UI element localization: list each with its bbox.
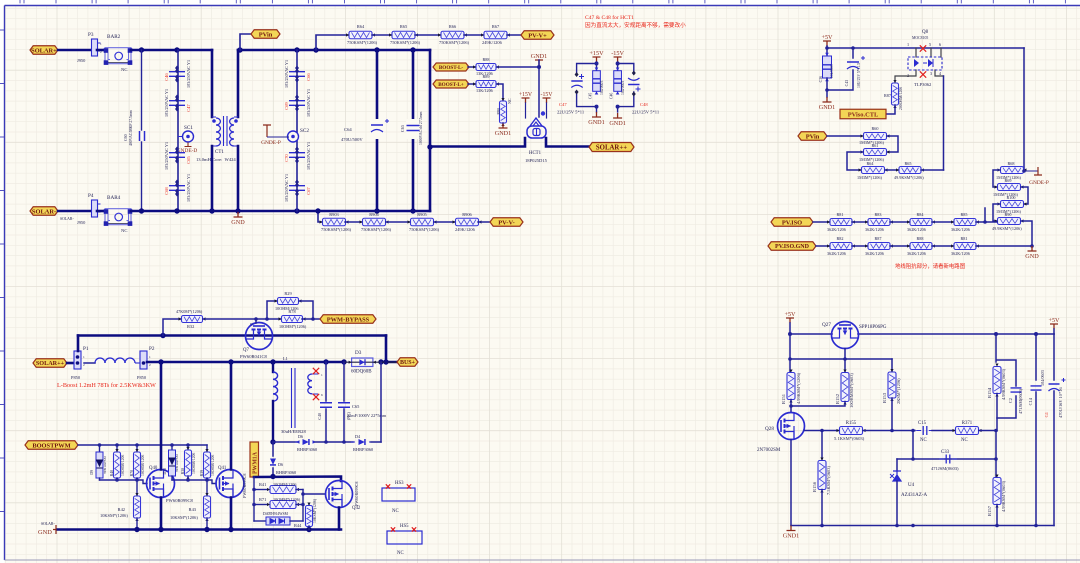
svg-text:10OHMSM*(0603): 10OHMSM*(0603) — [849, 373, 854, 408]
svg-text:G1: G1 — [1044, 412, 1049, 417]
svg-text:P3: P3 — [88, 32, 94, 38]
svg-text:HS3: HS3 — [395, 481, 404, 486]
svg-text:C65: C65 — [186, 156, 191, 164]
svg-text:TH914WSM: TH914WSM — [175, 454, 179, 472]
svg-text:3: 3 — [930, 71, 932, 76]
svg-text:R151: R151 — [781, 393, 786, 404]
svg-text:362K/1206: 362K/1206 — [907, 251, 926, 256]
svg-text:PV-V+: PV-V+ — [528, 32, 547, 39]
svg-text:10OHM/1206: 10OHM/1206 — [192, 453, 196, 474]
svg-text:Q8: Q8 — [922, 30, 929, 35]
svg-text:103/250VAC Y1: 103/250VAC Y1 — [186, 174, 191, 202]
svg-text:750KSM*(1206): 750KSM*(1206) — [439, 40, 470, 45]
svg-text:R69: R69 — [1005, 178, 1012, 183]
svg-text:NC: NC — [920, 438, 927, 443]
svg-text:C65: C65 — [352, 404, 360, 409]
svg-text:60DQ60B: 60DQ60B — [351, 370, 372, 375]
svg-text:D6: D6 — [278, 462, 283, 467]
svg-text:49.9KSM*(1206): 49.9KSM*(1206) — [894, 175, 924, 180]
svg-text:SOLAR-: SOLAR- — [32, 208, 56, 215]
svg-text:C45: C45 — [589, 93, 593, 99]
svg-text:49.9KSM*(1206): 49.9KSM*(1206) — [992, 226, 1022, 231]
svg-text:R371: R371 — [962, 421, 973, 426]
svg-text:R41: R41 — [259, 482, 266, 487]
svg-text:2KSM*(1206): 2KSM*(1206) — [896, 378, 901, 404]
svg-text:C47 & C48 for HCT1: C47 & C48 for HCT1 — [585, 14, 634, 21]
svg-text:R68: R68 — [1008, 161, 1015, 166]
svg-text:400VAC/MKP 27.5mm: 400VAC/MKP 27.5mm — [129, 110, 133, 146]
svg-text:362K/1206: 362K/1206 — [951, 251, 970, 256]
svg-text:NC: NC — [121, 67, 127, 72]
svg-text:2: 2 — [149, 363, 151, 367]
svg-text:PVin: PVin — [806, 133, 820, 140]
svg-text:1: 1 — [321, 373, 323, 377]
svg-text:1: 1 — [83, 355, 85, 359]
svg-text:P2: P2 — [149, 346, 155, 352]
svg-text:471JSM(0603): 471JSM(0603) — [931, 466, 959, 471]
svg-text:P1: P1 — [83, 346, 89, 352]
svg-text:C46: C46 — [610, 93, 614, 99]
svg-text:103/250VAC Y1: 103/250VAC Y1 — [306, 142, 311, 170]
svg-text:+15V: +15V — [589, 50, 604, 57]
svg-text:+5V: +5V — [821, 34, 833, 41]
svg-text:C36: C36 — [819, 76, 823, 82]
svg-text:PViso.CTL: PViso.CTL — [848, 111, 878, 118]
svg-text:R65: R65 — [905, 161, 912, 166]
svg-text:5: 5 — [929, 42, 931, 47]
svg-text:362K/1206: 362K/1206 — [865, 251, 884, 256]
svg-text:6: 6 — [939, 42, 941, 47]
svg-text:10OHM/1206: 10OHM/1206 — [211, 455, 215, 476]
svg-text:因为直流太大，安规距离不够，需要改小: 因为直流太大，安规距离不够，需要改小 — [585, 21, 686, 29]
svg-text:103/250VAC Y1: 103/250VAC Y1 — [306, 89, 311, 117]
svg-text:1000VAC/dd 27.5mm: 1000VAC/dd 27.5mm — [419, 111, 423, 145]
svg-text:BOOST-L+: BOOST-L+ — [438, 82, 464, 88]
svg-text:4.99KSM*(0603): 4.99KSM*(0603) — [1001, 368, 1006, 400]
svg-text:103/250VAC Y1: 103/250VAC Y1 — [164, 89, 169, 117]
svg-text:249K/1206: 249K/1206 — [455, 227, 476, 232]
svg-text:P850: P850 — [71, 375, 81, 380]
svg-text:362K/1206: 362K/1206 — [951, 227, 970, 232]
svg-text:C67: C67 — [306, 187, 311, 195]
svg-text:R82: R82 — [837, 236, 844, 241]
svg-text:10OHM/1206: 10OHM/1206 — [141, 455, 145, 476]
svg-text:103/250VAC Y1: 103/250VAC Y1 — [186, 60, 191, 88]
svg-text:103/250VAC Y1: 103/250VAC Y1 — [164, 142, 169, 170]
svg-text:-15V: -15V — [611, 50, 624, 57]
svg-text:R70: R70 — [130, 470, 134, 476]
svg-text:P4: P4 — [88, 193, 94, 199]
svg-text:10U/25V 5*11.5: 10U/25V 5*11.5 — [857, 63, 861, 88]
svg-text:SOLAR++: SOLAR++ — [36, 360, 65, 367]
svg-text:PWM1A: PWM1A — [253, 451, 259, 474]
svg-text:470U/16V 10*16: 470U/16V 10*16 — [1058, 387, 1063, 418]
svg-text:SOLAR+: SOLAR+ — [31, 47, 57, 54]
svg-text:TH914WSM: TH914WSM — [269, 512, 289, 516]
svg-text:R155: R155 — [846, 421, 857, 426]
svg-text:R83: R83 — [875, 212, 882, 217]
svg-text:PW60R099C8: PW60R099C8 — [166, 498, 194, 503]
svg-text:HCT1: HCT1 — [529, 151, 542, 156]
svg-text:R38: R38 — [181, 468, 185, 474]
svg-text:BOOST-L-: BOOST-L- — [439, 65, 464, 71]
svg-text:471JSM(0603): 471JSM(0603) — [1018, 388, 1023, 414]
svg-text:R81: R81 — [837, 212, 844, 217]
svg-text:NC: NC — [121, 228, 127, 233]
svg-text:249K/1206: 249K/1206 — [482, 40, 503, 45]
svg-text:10KSM*(1206): 10KSM*(1206) — [313, 498, 317, 523]
svg-text:GND1: GND1 — [588, 119, 605, 126]
svg-text:104/0603: 104/0603 — [621, 81, 625, 95]
svg-text:R903: R903 — [329, 212, 339, 217]
svg-text:SC2: SC2 — [300, 128, 309, 134]
svg-text:SOLAR++: SOLAR++ — [596, 144, 627, 151]
svg-text:BOOSTPWM: BOOSTPWM — [32, 442, 70, 449]
svg-text:R67: R67 — [492, 24, 500, 29]
svg-text:750KSM*(1206): 750KSM*(1206) — [361, 227, 392, 232]
svg-text:R29: R29 — [284, 291, 292, 296]
svg-text:C60: C60 — [123, 134, 128, 141]
svg-text:18P025D15: 18P025D15 — [525, 158, 548, 163]
svg-text:1: 1 — [100, 42, 102, 46]
svg-text:GNDE-P: GNDE-P — [261, 140, 281, 146]
svg-text:R39: R39 — [200, 470, 204, 476]
svg-text:SOLAR-: SOLAR- — [60, 217, 74, 221]
svg-text:10OHM/1206: 10OHM/1206 — [121, 455, 125, 476]
svg-text:104/0603: 104/0603 — [830, 64, 834, 78]
svg-text:1M3M*(1206): 1M3M*(1206) — [857, 175, 882, 180]
svg-text:R61: R61 — [872, 143, 879, 148]
svg-text:47K0M*(1206): 47K0M*(1206) — [176, 309, 203, 314]
svg-text:NC: NC — [961, 438, 968, 443]
svg-text:C48: C48 — [640, 102, 648, 107]
svg-text:MOC8105: MOC8105 — [912, 36, 928, 40]
svg-text:Q27: Q27 — [822, 322, 831, 328]
svg-text:+5V: +5V — [1048, 317, 1060, 324]
svg-text:L1: L1 — [283, 356, 288, 361]
svg-text:R84: R84 — [917, 212, 925, 217]
svg-text:+15V: +15V — [519, 92, 533, 98]
svg-text:R43: R43 — [189, 507, 197, 512]
svg-text:200OHM/1206: 200OHM/1206 — [899, 87, 903, 110]
svg-text:RHRP3060: RHRP3060 — [353, 447, 374, 452]
svg-text:750KSM*(1206): 750KSM*(1206) — [390, 40, 421, 45]
svg-text:362K/1206: 362K/1206 — [827, 251, 846, 256]
svg-text:R32: R32 — [187, 324, 194, 329]
svg-text:C46: C46 — [164, 73, 169, 81]
svg-text:PW60R099C8: PW60R099C8 — [242, 474, 247, 498]
svg-text:D3: D3 — [355, 350, 362, 356]
svg-text:CT1: CT1 — [215, 150, 224, 155]
svg-text:10KSM*(1206): 10KSM*(1206) — [100, 513, 128, 518]
svg-text:C68: C68 — [164, 187, 169, 195]
svg-text:R40: R40 — [110, 470, 114, 476]
svg-text:R66: R66 — [449, 24, 457, 29]
svg-text:C47: C47 — [559, 102, 567, 107]
svg-text:7.5KSM*(0603): 7.5KSM*(0603) — [826, 466, 831, 495]
svg-text:22U/25V 5*11: 22U/25V 5*11 — [557, 110, 585, 115]
svg-text:R80: R80 — [496, 108, 501, 115]
svg-text:R89: R89 — [483, 74, 490, 79]
svg-text:750KSM*(1206): 750KSM*(1206) — [409, 227, 440, 232]
svg-text:5.1KSM*(0603): 5.1KSM*(0603) — [834, 436, 865, 441]
svg-text:C43: C43 — [845, 80, 849, 86]
svg-text:GND: GND — [1025, 253, 1039, 260]
svg-text:R152: R152 — [835, 393, 840, 404]
svg-text:PWM-BYPASS: PWM-BYPASS — [327, 316, 370, 323]
svg-text:D4: D4 — [355, 434, 361, 439]
svg-text:C2: C2 — [1008, 398, 1013, 403]
svg-text:10OHM*(1206): 10OHM*(1206) — [273, 497, 301, 502]
svg-text:GND: GND — [231, 219, 245, 226]
svg-text:R88: R88 — [483, 57, 490, 62]
svg-text:PVin: PVin — [259, 31, 273, 38]
svg-text:22U/25V 5*11: 22U/25V 5*11 — [632, 110, 660, 115]
svg-text:C69: C69 — [284, 102, 289, 110]
svg-text:6: 6 — [321, 393, 323, 397]
svg-text:R154: R154 — [987, 387, 992, 398]
svg-text:R156: R156 — [812, 481, 817, 492]
svg-text:R88: R88 — [917, 236, 924, 241]
svg-text:1: 1 — [149, 355, 151, 359]
svg-text:R904: R904 — [369, 212, 379, 217]
svg-text:R905: R905 — [417, 212, 427, 217]
svg-text:13.0mH Core: W424: 13.0mH Core: W424 — [196, 157, 236, 162]
svg-text:C47: C47 — [186, 104, 191, 112]
svg-text:GND: GND — [38, 529, 52, 536]
svg-text:104/0603: 104/0603 — [600, 81, 604, 95]
svg-text:750KSM*(1206): 750KSM*(1206) — [321, 227, 352, 232]
svg-text:C15: C15 — [918, 421, 927, 426]
svg-text:GNDE-P: GNDE-P — [1029, 180, 1049, 186]
svg-text:362K/1206: 362K/1206 — [865, 227, 884, 232]
svg-text:PW60R099C8: PW60R099C8 — [354, 482, 359, 506]
svg-text:BAR2: BAR2 — [107, 34, 121, 40]
svg-text:J950: J950 — [77, 58, 86, 63]
svg-text:R71: R71 — [259, 497, 266, 502]
svg-text:PV.ISO.GND: PV.ISO.GND — [775, 244, 810, 250]
svg-text:C70: C70 — [284, 154, 289, 162]
svg-text:C40: C40 — [317, 413, 322, 420]
svg-text:104/0603: 104/0603 — [1040, 370, 1045, 386]
svg-text:10OHM*(1206): 10OHM*(1206) — [279, 324, 307, 329]
svg-text:4.99KSM*(1206): 4.99KSM*(1206) — [796, 372, 801, 404]
svg-text:GND1: GND1 — [531, 53, 548, 60]
svg-text:GND1: GND1 — [495, 130, 512, 137]
svg-text:R90: R90 — [1005, 212, 1012, 217]
svg-text:10KSM*(1206): 10KSM*(1206) — [170, 515, 198, 520]
svg-text:U4: U4 — [908, 483, 915, 488]
svg-text:2N7002SM: 2N7002SM — [757, 448, 781, 453]
svg-text:103/250VAC Y1: 103/250VAC Y1 — [284, 60, 289, 88]
svg-text:GND1: GND1 — [609, 120, 626, 127]
svg-text:C33: C33 — [941, 450, 950, 455]
svg-text:RHRP3060: RHRP3060 — [276, 470, 297, 475]
svg-text:NC: NC — [392, 509, 399, 514]
svg-text:TLP3062: TLP3062 — [914, 82, 932, 87]
svg-text:R44: R44 — [294, 523, 302, 528]
svg-text:C65: C65 — [400, 125, 405, 132]
svg-text:GND1: GND1 — [783, 533, 800, 540]
svg-text:470U/500V: 470U/500V — [341, 137, 363, 142]
svg-text:PW60R041C8: PW60R041C8 — [240, 354, 268, 359]
svg-text:D9: D9 — [90, 470, 94, 475]
svg-text:TH914WSM: TH914WSM — [103, 456, 107, 474]
svg-text:362K/1206: 362K/1206 — [827, 227, 846, 232]
svg-text:SC1: SC1 — [184, 125, 193, 131]
svg-text:R85: R85 — [961, 212, 968, 217]
svg-text:R87: R87 — [884, 93, 891, 98]
svg-text:Q41: Q41 — [218, 466, 227, 471]
svg-text:R906: R906 — [462, 212, 472, 217]
svg-text:RHRP3060: RHRP3060 — [297, 447, 318, 452]
svg-text:R87: R87 — [875, 236, 882, 241]
svg-text:NC: NC — [507, 98, 512, 104]
svg-text:PV-V-: PV-V- — [498, 219, 514, 226]
svg-text:PV.ISO: PV.ISO — [782, 219, 802, 226]
svg-text:R42: R42 — [118, 507, 125, 512]
svg-text:4.99KSM*(0603): 4.99KSM*(0603) — [1001, 480, 1006, 512]
svg-text:R64: R64 — [867, 161, 875, 166]
svg-text:C64: C64 — [344, 127, 352, 132]
svg-text:R81: R81 — [961, 236, 968, 241]
svg-text:BUS+: BUS+ — [400, 360, 416, 366]
svg-text:SPP18P06PG: SPP18P06PG — [859, 325, 887, 330]
svg-text:750KSM*(1206): 750KSM*(1206) — [347, 40, 378, 45]
svg-text:Q40: Q40 — [149, 466, 158, 471]
svg-text:地线阻抗部分，请看新电路图: 地线阻抗部分，请看新电路图 — [895, 262, 965, 270]
svg-text:Q7: Q7 — [243, 348, 249, 353]
svg-text:R78: R78 — [288, 309, 296, 314]
svg-text:NC: NC — [397, 551, 404, 556]
svg-text:J950: J950 — [77, 220, 86, 225]
svg-text:R100: R100 — [1006, 195, 1015, 200]
svg-text:C14: C14 — [1028, 397, 1033, 405]
svg-text:362K/1206: 362K/1206 — [907, 227, 926, 232]
svg-text:BAR4: BAR4 — [107, 195, 121, 201]
svg-text:C66: C66 — [306, 73, 311, 81]
svg-text:L-Boost 1.2mH 78Ts for 2.5KW&3: L-Boost 1.2mH 78Ts for 2.5KW&3KW — [57, 382, 156, 389]
svg-text:1: 1 — [907, 42, 909, 47]
svg-text:-15V: -15V — [541, 92, 554, 98]
svg-text:103/250VAC Y1: 103/250VAC Y1 — [284, 174, 289, 202]
svg-text:R60: R60 — [872, 126, 879, 131]
svg-text:+5V: +5V — [784, 311, 796, 318]
svg-text:R153: R153 — [882, 392, 887, 403]
svg-text:D6: D6 — [298, 434, 303, 439]
svg-text:SOLAR-: SOLAR- — [41, 522, 55, 526]
svg-text:AZ431AZ-A: AZ431AZ-A — [901, 493, 927, 498]
svg-text:HS5: HS5 — [400, 524, 409, 529]
svg-text:R65: R65 — [400, 24, 408, 29]
svg-text:13K/1206: 13K/1206 — [476, 88, 493, 93]
svg-text:D10: D10 — [163, 468, 167, 475]
svg-text:P850: P850 — [137, 375, 147, 380]
svg-text:R157: R157 — [987, 505, 992, 516]
svg-text:10OHM/1206: 10OHM/1206 — [273, 482, 297, 487]
svg-text:Q28: Q28 — [765, 426, 774, 432]
svg-text:R64: R64 — [357, 24, 365, 29]
svg-text:GND1: GND1 — [819, 104, 836, 111]
